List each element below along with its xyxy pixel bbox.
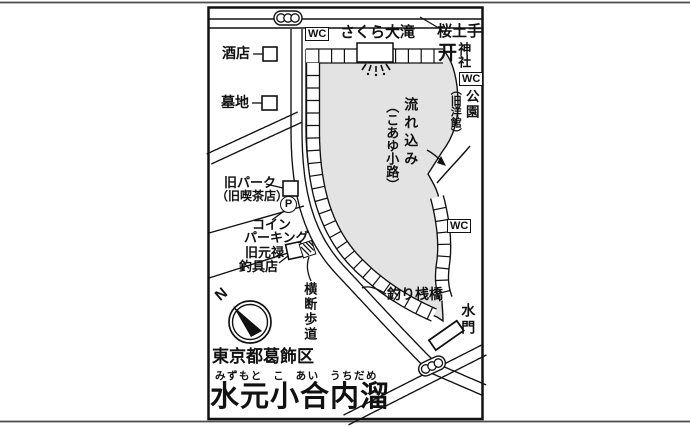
- label-park: 公園: [464, 89, 478, 120]
- label-coin-parking-2: パーキング: [244, 231, 309, 244]
- wc-badge-east: WC: [447, 219, 471, 233]
- label-sakura-embankment: 桜土手: [437, 24, 482, 39]
- fishing-map-page: 桜土手 WC さくら大滝 开 神社 WC 公園 （旧洋館） 流れ込み （こあゆ小…: [0, 0, 690, 427]
- label-former-park-note: （旧喫茶店）: [216, 190, 288, 202]
- map-graphics: [0, 0, 690, 427]
- label-former-genroku-2: 釣具店: [239, 260, 278, 273]
- sluice-gate: [429, 321, 464, 350]
- label-fishing-pier: 釣り桟橋: [387, 287, 443, 301]
- label-liquor-store: 酒店: [222, 46, 250, 60]
- label-sakura-waterfall: さくら大滝: [340, 25, 415, 40]
- wc-badge-top: WC: [305, 27, 329, 41]
- torii-icon: 开: [438, 44, 457, 63]
- region-label: 東京都葛飾区: [212, 348, 314, 365]
- building-cemetery: [262, 96, 277, 110]
- waterfall-structure: [357, 43, 393, 62]
- label-sluice-gate: 水門: [461, 303, 475, 337]
- map-title: 水元小合内溜: [210, 383, 390, 413]
- wc-badge-park: WC: [459, 72, 483, 86]
- label-former-genroku-1: 旧元禄: [245, 246, 284, 259]
- gate-icon-bottom: [416, 354, 447, 379]
- label-cemetery: 墓地: [221, 95, 249, 109]
- building-liquor-store: [263, 47, 277, 61]
- label-former-park: 旧パーク: [224, 176, 276, 189]
- label-park-note: （旧洋館）: [449, 84, 460, 139]
- road-branch-cemetery: [207, 112, 303, 164]
- label-inflow: 流れ込み: [404, 97, 418, 169]
- compass-icon: [229, 301, 271, 343]
- gate-icon-top: [274, 11, 302, 25]
- label-crosswalk: 横断歩道: [303, 282, 316, 342]
- label-shrine: 神社: [457, 42, 470, 68]
- parking-icon: P: [280, 196, 297, 213]
- label-inflow-note: （こあゆ小路）: [385, 100, 398, 191]
